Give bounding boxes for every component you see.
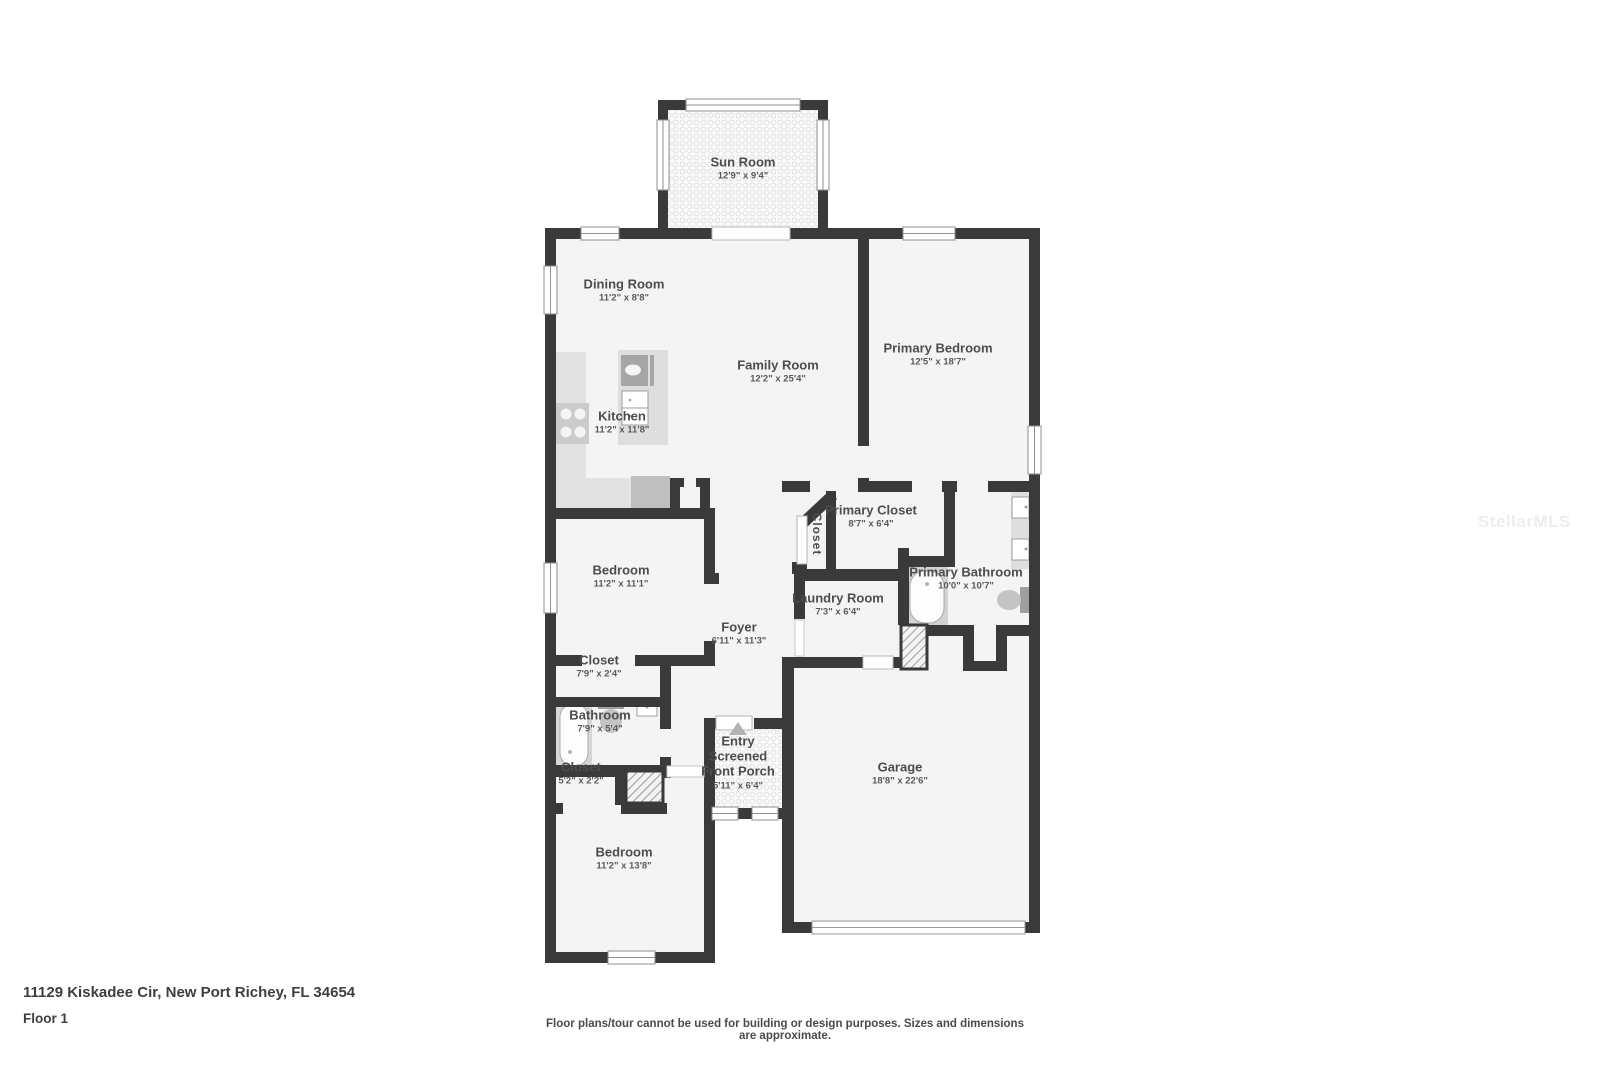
cooktop-icon bbox=[556, 403, 589, 444]
utility-hatch bbox=[626, 771, 663, 803]
sun-room-floor bbox=[663, 105, 823, 233]
closet-door bbox=[797, 516, 807, 564]
floor-plan-drawing bbox=[0, 0, 1600, 1066]
floor-label: Floor 1 bbox=[23, 1011, 68, 1026]
bedroom-door bbox=[667, 766, 704, 777]
counter-block bbox=[631, 476, 670, 509]
porch-floor bbox=[715, 729, 783, 809]
toilet-icon bbox=[1020, 587, 1030, 613]
stellar-mls-watermark: StellarMLS bbox=[1478, 512, 1571, 532]
sliding-door bbox=[712, 227, 790, 240]
bathtub-icon bbox=[560, 704, 588, 766]
utility-hatch bbox=[901, 625, 927, 669]
floor-plan-page: Sun Room12'9" x 9'4" Dining Room11'2" x … bbox=[0, 0, 1600, 1066]
property-address: 11129 Kiskadee Cir, New Port Richey, FL … bbox=[23, 984, 355, 1001]
room-label-hall-closet: Closet bbox=[810, 513, 824, 556]
laundry-door bbox=[795, 620, 804, 656]
garage-entry-door bbox=[863, 656, 893, 669]
disclaimer-text: Floor plans/tour cannot be used for buil… bbox=[540, 1018, 1030, 1042]
bathtub-icon bbox=[910, 571, 944, 623]
